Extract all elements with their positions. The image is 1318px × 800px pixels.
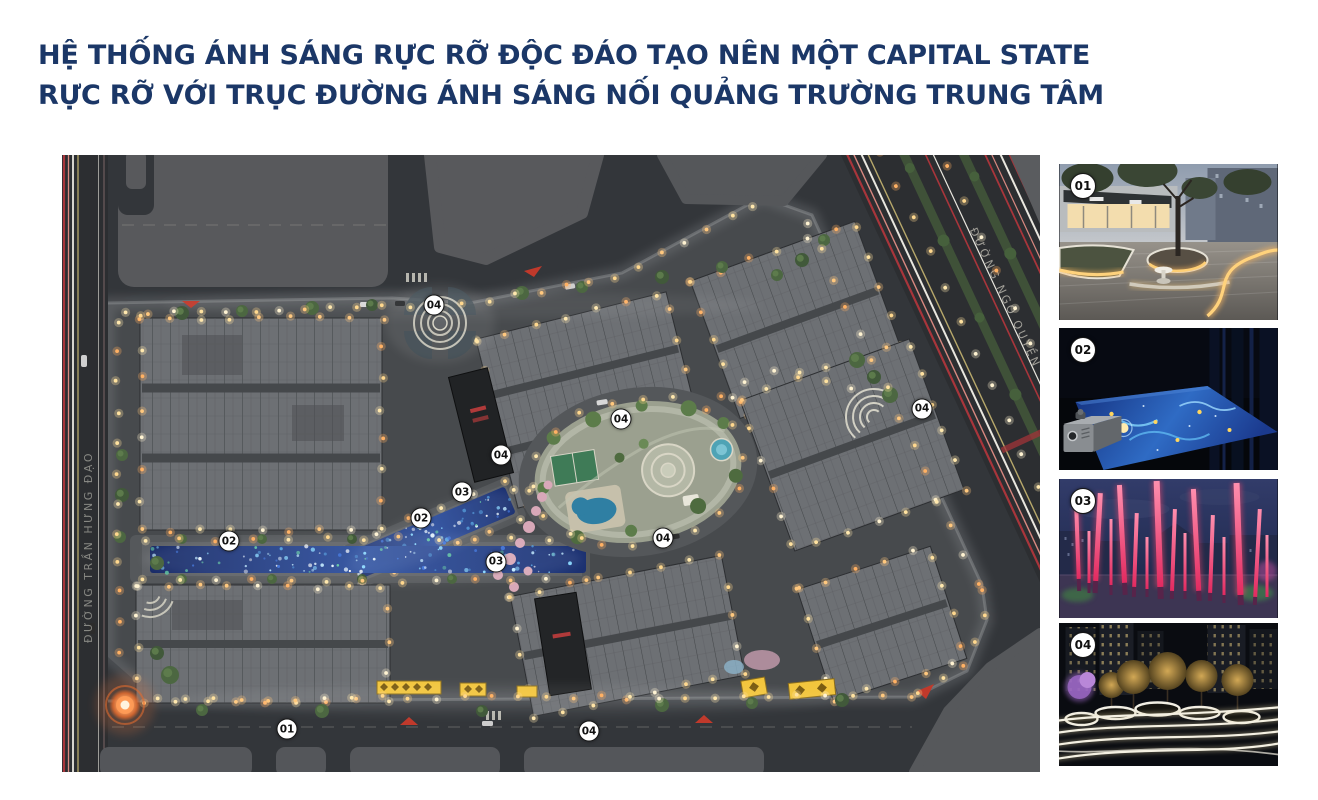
gallery-badge-01: 01 <box>1070 173 1096 199</box>
map-badge-02: 02 <box>411 508 432 529</box>
map-badge-04: 04 <box>579 721 600 742</box>
gallery-badge-03: 03 <box>1070 488 1096 514</box>
map-badge-01: 01 <box>277 719 298 740</box>
gallery-item-curved-ground-lights: 04 <box>1059 623 1278 766</box>
map-badge-04: 04 <box>912 398 933 419</box>
map-badge-02: 02 <box>219 531 240 552</box>
gallery-item-projection-walkway: 02 <box>1059 328 1278 470</box>
page-root: { "page": { "background": "#ffffff" }, "… <box>0 0 1318 800</box>
map-badge-04: 04 <box>424 295 445 316</box>
gallery-item-red-light-poles: 03 <box>1059 479 1278 618</box>
gallery-badge-02: 02 <box>1070 337 1096 363</box>
gallery-item-led-strip-plaza: 01 <box>1059 164 1278 320</box>
page-title: HỆ THỐNG ÁNH SÁNG RỰC RỠ ĐỘC ĐÁO TẠO NÊN… <box>38 36 1104 116</box>
map-badge-03: 03 <box>452 482 473 503</box>
map-badge-layer: 0404040403020203040104 <box>62 155 1040 772</box>
map-badge-04: 04 <box>491 445 512 466</box>
site-plan-map: ĐƯỜNG TRẦN HƯNG ĐẠO ĐƯỜNG NGÔ QUYỀN <box>62 155 1040 772</box>
title-line-2: RỰC RỠ VỚI TRỤC ĐƯỜNG ÁNH SÁNG NỐI QUẢNG… <box>38 76 1104 116</box>
map-badge-04: 04 <box>611 409 632 430</box>
title-line-1: HỆ THỐNG ÁNH SÁNG RỰC RỠ ĐỘC ĐÁO TẠO NÊN… <box>38 36 1104 76</box>
gallery-badge-04: 04 <box>1070 632 1096 658</box>
map-badge-03: 03 <box>486 551 507 572</box>
map-badge-04: 04 <box>653 528 674 549</box>
